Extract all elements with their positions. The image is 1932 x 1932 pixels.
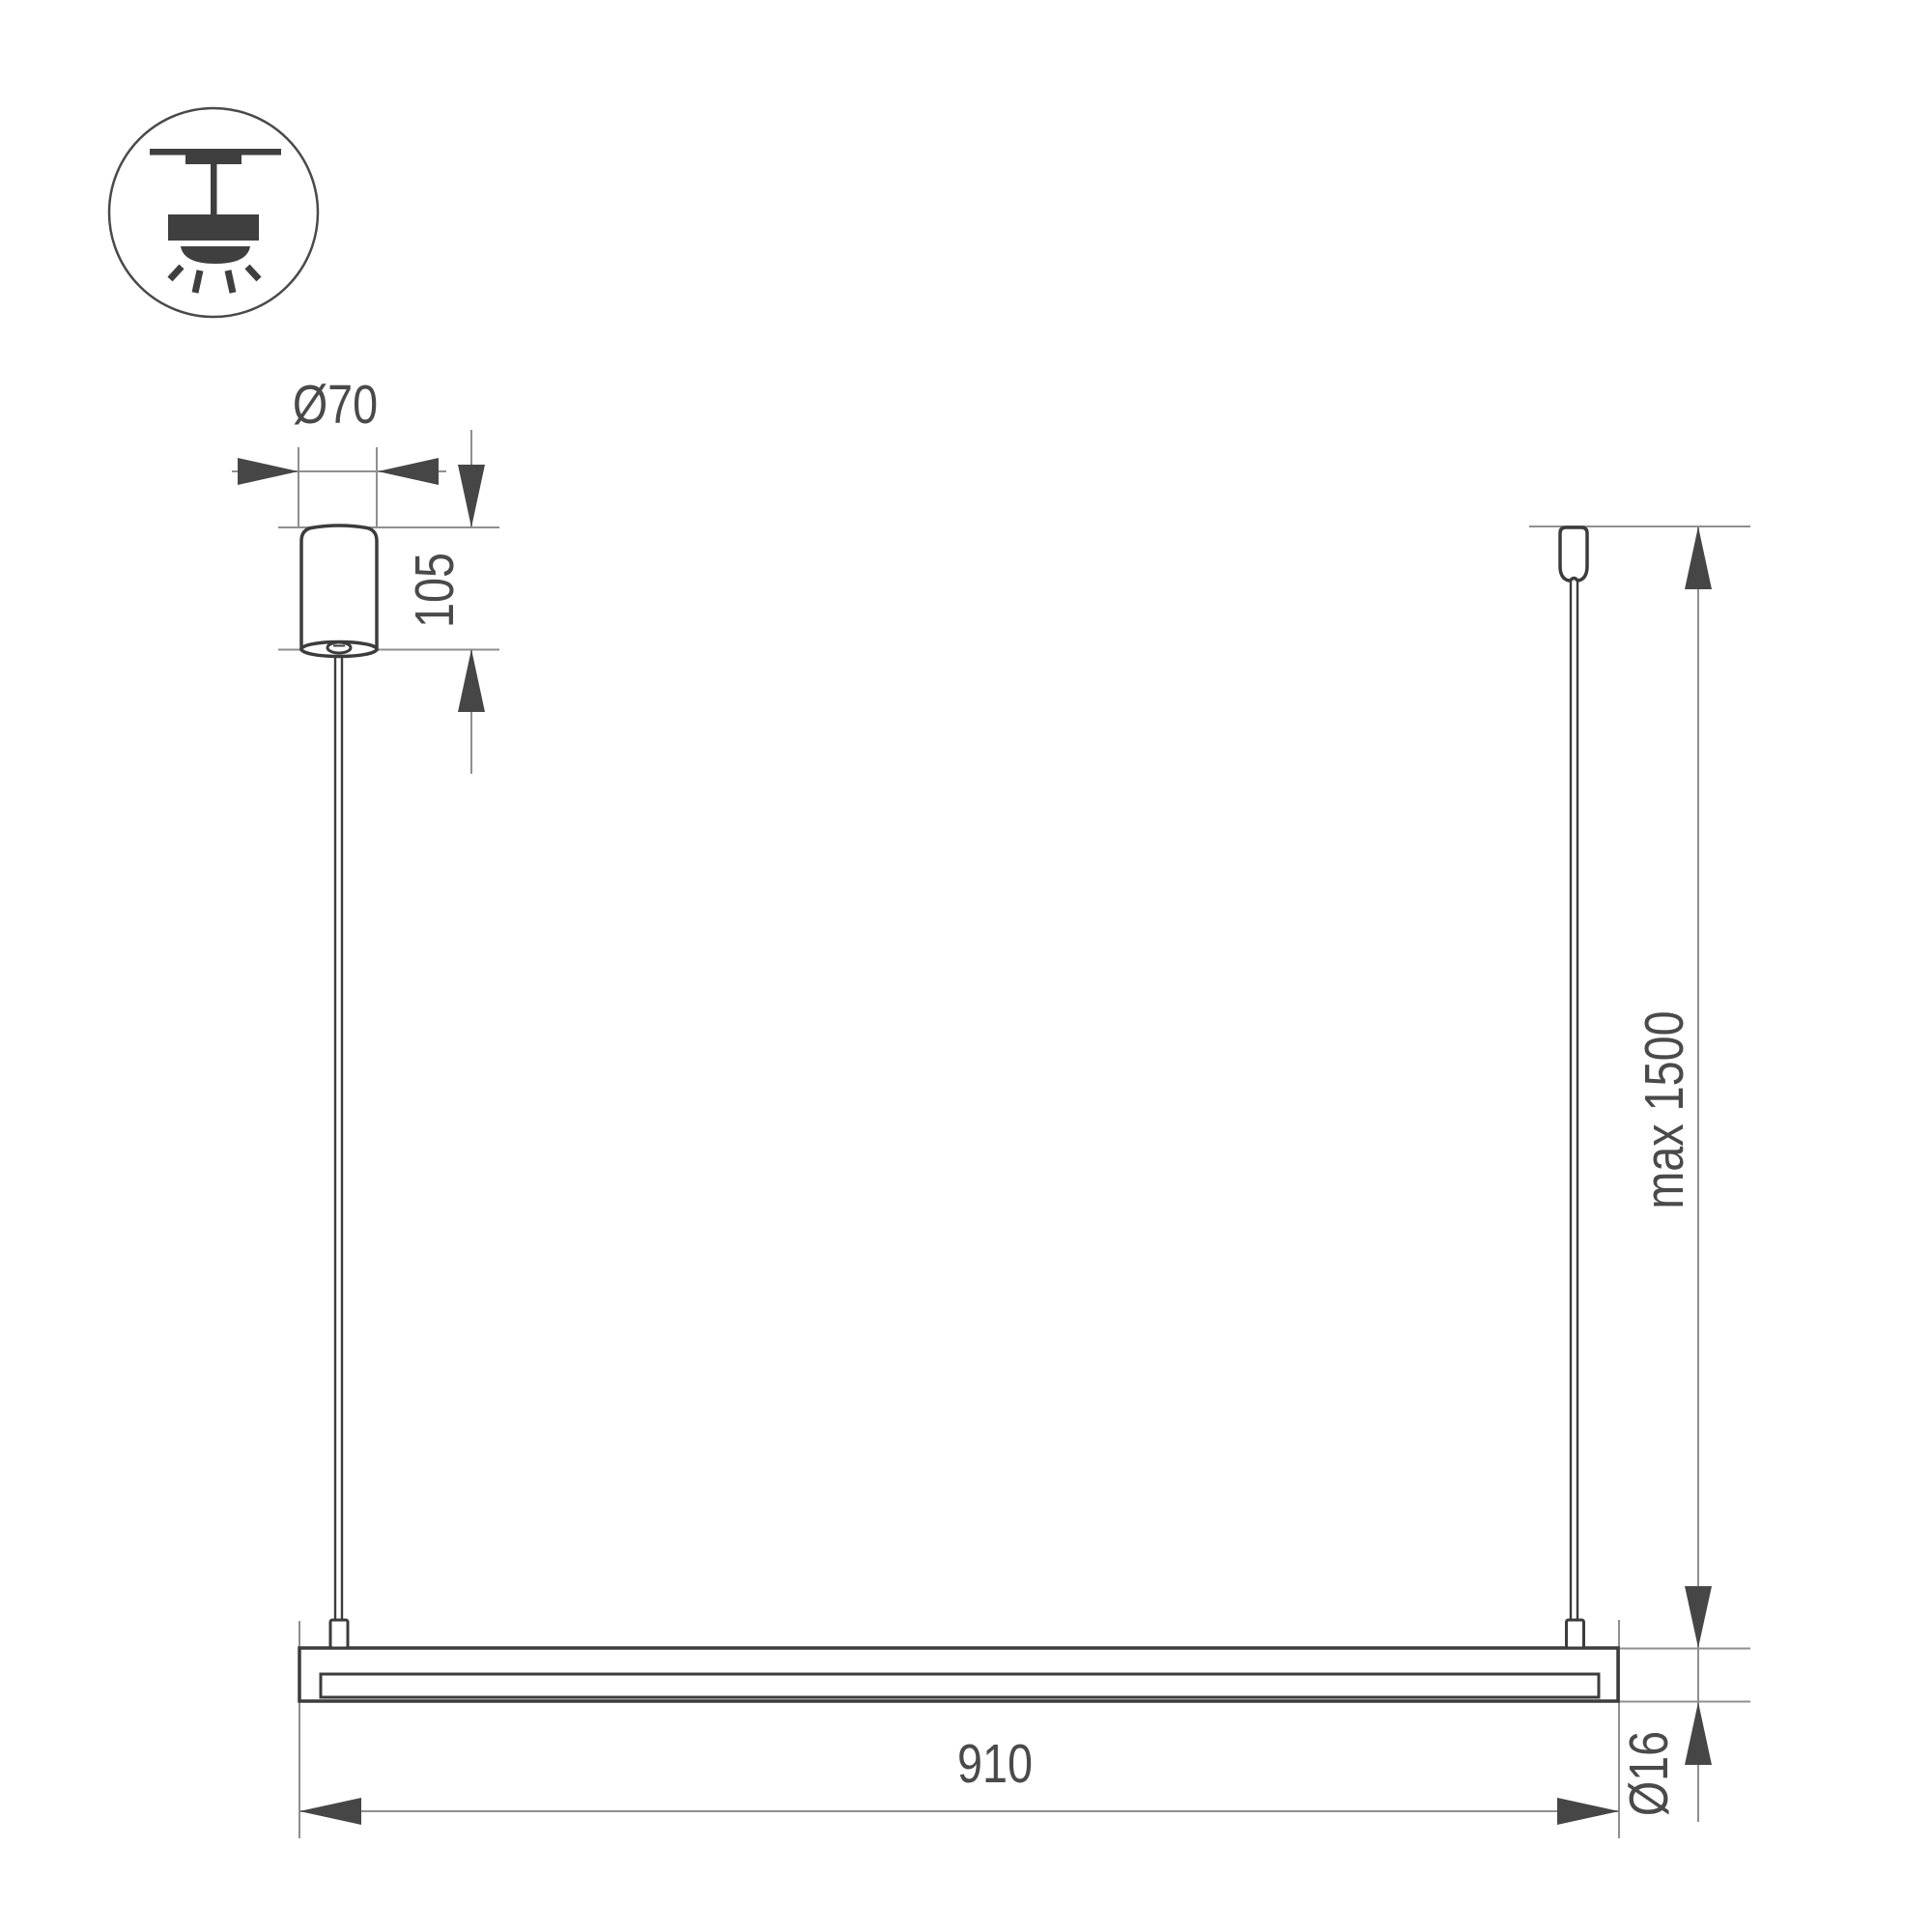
wire-fitting-left xyxy=(330,1620,348,1648)
arrow-suspension-bottom xyxy=(1685,1586,1712,1648)
dim-label-canopy-height: 105 xyxy=(403,553,467,628)
icon-ceiling-line xyxy=(150,149,281,156)
arrow-canopy-height-top xyxy=(458,465,485,527)
technical-drawing-canvas: Ø70 105 max 1500 910 Ø16 xyxy=(0,0,1932,1932)
ceiling-pendant-light-icon xyxy=(109,108,318,317)
arrow-fixture-length-right xyxy=(1557,1798,1619,1825)
dim-label-fixture-length: 910 xyxy=(957,1732,1033,1796)
arrow-canopy-height-bottom xyxy=(458,649,485,712)
suspension-wires xyxy=(335,580,1577,1620)
canopy-cable-gland xyxy=(327,642,351,653)
lamp-bar xyxy=(299,1620,1618,1701)
ceiling-canopy xyxy=(301,526,377,657)
canopy-body xyxy=(301,526,377,649)
icon-stem xyxy=(211,159,217,215)
arrow-tube-diameter xyxy=(1685,1702,1712,1765)
dim-label-tube-diameter: Ø16 xyxy=(1617,1731,1681,1816)
arrow-suspension-top xyxy=(1685,526,1712,589)
extension-and-dimension-lines xyxy=(232,430,1750,1838)
wire-fitting-right xyxy=(1567,1620,1584,1648)
pendant-lamp-dimension-drawing xyxy=(0,0,1932,1932)
arrow-canopy-diameter-right xyxy=(378,458,439,485)
dimension-arrowheads xyxy=(238,458,1712,1825)
arrow-fixture-length-left xyxy=(299,1798,361,1825)
ceiling-grip-right xyxy=(1560,527,1587,581)
icon-lamp-shade xyxy=(168,214,259,241)
dim-label-canopy-diameter: Ø70 xyxy=(293,373,378,437)
arrow-canopy-diameter-left xyxy=(238,458,298,485)
dim-label-suspension-length: max 1500 xyxy=(1633,1010,1696,1208)
